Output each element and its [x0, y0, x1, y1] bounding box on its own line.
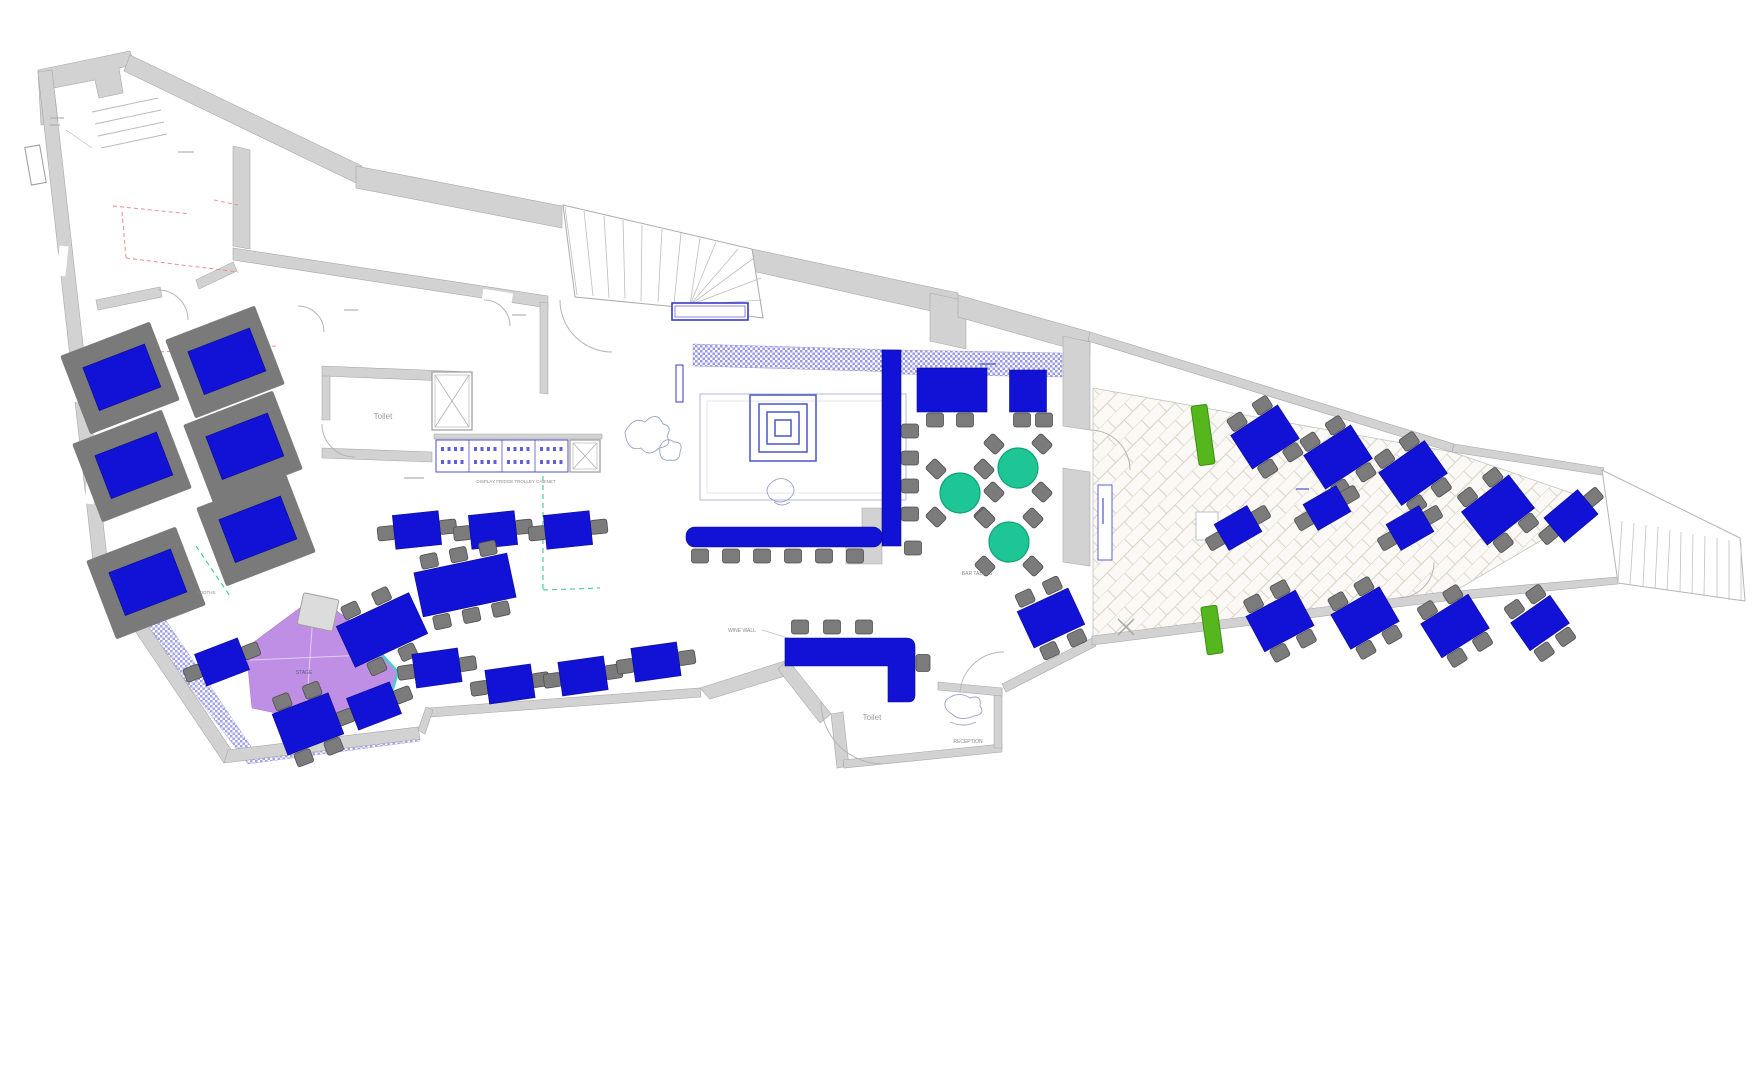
wall: [322, 448, 432, 462]
floor-inlay-square: [775, 420, 791, 436]
chair: [677, 650, 696, 666]
chair: [616, 658, 635, 674]
sketch-doodle: [660, 440, 681, 461]
table-top: [558, 656, 608, 696]
demolition-dash-line: [122, 212, 126, 258]
chair: [974, 507, 996, 529]
chair: [1031, 481, 1053, 503]
chair: [543, 672, 562, 688]
dining-table: [376, 509, 458, 551]
chair: [590, 519, 608, 535]
chair: [816, 549, 833, 563]
chair: [957, 413, 974, 427]
chair: [692, 549, 709, 563]
chair: [419, 552, 439, 569]
banquette-bench: [686, 527, 882, 547]
plan-label: STAGE: [296, 670, 313, 676]
banquette-chair-slot: [785, 549, 802, 563]
entry-step-line: [98, 122, 164, 136]
chair: [491, 600, 511, 617]
chair: [785, 549, 802, 563]
chair: [824, 620, 841, 634]
bar-stool: [902, 424, 919, 438]
chair: [754, 549, 771, 563]
sketch-doodle: [767, 478, 794, 505]
main-staircase: [563, 205, 763, 318]
round-table-top: [989, 522, 1029, 562]
round-bar-table: [974, 507, 1044, 577]
chair: [902, 479, 919, 493]
chair: [377, 525, 395, 541]
door-swing-arc: [560, 300, 612, 352]
wall: [994, 688, 1002, 748]
wall: [418, 707, 433, 734]
entry-step-line: [92, 98, 158, 112]
chair: [927, 413, 944, 427]
display-cabinet-row: [436, 440, 568, 472]
floor-inlay-square: [750, 395, 816, 461]
floor-inlay-square: [767, 412, 799, 444]
chair: [905, 541, 922, 555]
chair: [983, 481, 1005, 503]
chair: [983, 433, 1005, 455]
chair: [432, 613, 452, 630]
wall: [1063, 468, 1090, 566]
lift-shaft: [570, 440, 600, 472]
door-leaf: [25, 145, 46, 185]
table-top: [1010, 370, 1047, 412]
wall: [196, 262, 237, 289]
chair: [792, 620, 809, 634]
chair: [916, 655, 930, 672]
chair: [902, 451, 919, 465]
chair: [470, 680, 489, 696]
wall: [938, 682, 1002, 696]
sketch-doodle: [945, 694, 982, 725]
wall: [356, 166, 562, 228]
chair: [1022, 555, 1044, 577]
lift-shaft: [432, 372, 472, 430]
bar-stool: [902, 451, 919, 465]
display-wall-band: [693, 344, 900, 372]
dining-table: [615, 640, 698, 685]
feature-room-inner: [707, 401, 899, 493]
dining-table: [411, 538, 520, 632]
floor-plan-svg: ToiletToiletRECEPTIONBAR TABLESWINE WALL…: [0, 0, 1755, 1080]
chair: [973, 458, 995, 480]
wall: [233, 146, 250, 249]
chair: [453, 525, 471, 541]
stage-podium: [297, 593, 339, 632]
zone-dash-line: [543, 588, 600, 590]
chair: [847, 549, 864, 563]
chair: [856, 620, 873, 634]
plan-label: DISPLAY FRIDGE TROLLEY CABINET: [476, 479, 555, 484]
table-top: [917, 368, 987, 412]
chair: [925, 506, 947, 528]
table-top: [631, 642, 681, 682]
banquette-chair-slot: [754, 549, 771, 563]
round-table-top: [940, 473, 980, 513]
wall: [434, 434, 602, 439]
chair: [397, 664, 416, 680]
bar-stool: [905, 541, 922, 555]
chair: [449, 546, 469, 563]
plan-label: Toilet: [374, 412, 393, 421]
wall: [843, 744, 1002, 768]
banquette-chair-slot: [723, 549, 740, 563]
table-top: [392, 511, 441, 550]
banquette-chair-slot: [692, 549, 709, 563]
bar-high-table: [917, 368, 987, 427]
plan-label: BOOTHS: [196, 590, 215, 595]
bar-high-table: [1010, 370, 1053, 427]
demolition-dash-line: [113, 206, 190, 214]
banquette-chair-slot: [847, 549, 864, 563]
sketch-doodle: [625, 416, 669, 453]
entry-step-line: [95, 110, 161, 124]
plan-label: WINE WALL: [728, 628, 756, 634]
table-top: [543, 511, 592, 550]
door-swing-arc: [821, 702, 883, 764]
wall: [700, 660, 795, 699]
plan-label: BAR TABLES: [962, 571, 993, 577]
chair: [1036, 413, 1053, 427]
table-top: [485, 664, 535, 704]
feature-room-outline: [700, 394, 906, 500]
dining-table: [542, 654, 625, 699]
plan-label: Toilet: [863, 713, 882, 722]
chair: [1014, 413, 1031, 427]
wall: [778, 660, 831, 723]
chair: [723, 549, 740, 563]
door-swing-arc: [158, 290, 188, 320]
wall-niche: [676, 365, 683, 402]
wall: [540, 302, 548, 394]
plan-label: RECEPTION: [953, 739, 983, 745]
chair: [458, 656, 477, 672]
chair: [528, 525, 546, 541]
leader-line: [66, 130, 92, 148]
chair: [478, 540, 498, 557]
wall: [322, 376, 330, 420]
bar-stool: [902, 479, 919, 493]
wall: [1063, 336, 1090, 430]
wall: [96, 287, 162, 310]
chair: [462, 607, 482, 624]
menu-board: [1098, 485, 1112, 560]
terrace-steps: [1602, 470, 1745, 601]
entry-step-line: [101, 134, 167, 148]
chair: [1031, 433, 1053, 455]
bar-stool: [902, 507, 919, 521]
stair-landing: [672, 303, 748, 320]
chair: [902, 424, 919, 438]
chair: [902, 507, 919, 521]
dining-table: [527, 509, 609, 551]
banquette-chair-slot: [816, 549, 833, 563]
round-bar-table: [983, 433, 1053, 503]
floor-plan-canvas: ToiletToiletRECEPTIONBAR TABLESWINE WALL…: [0, 0, 1755, 1080]
wall-opening: [297, 291, 329, 311]
wall: [752, 249, 958, 317]
bar-counter: [882, 350, 901, 546]
chair: [1022, 507, 1044, 529]
chair: [925, 458, 947, 480]
round-table-top: [998, 448, 1038, 488]
table-top: [412, 648, 462, 688]
